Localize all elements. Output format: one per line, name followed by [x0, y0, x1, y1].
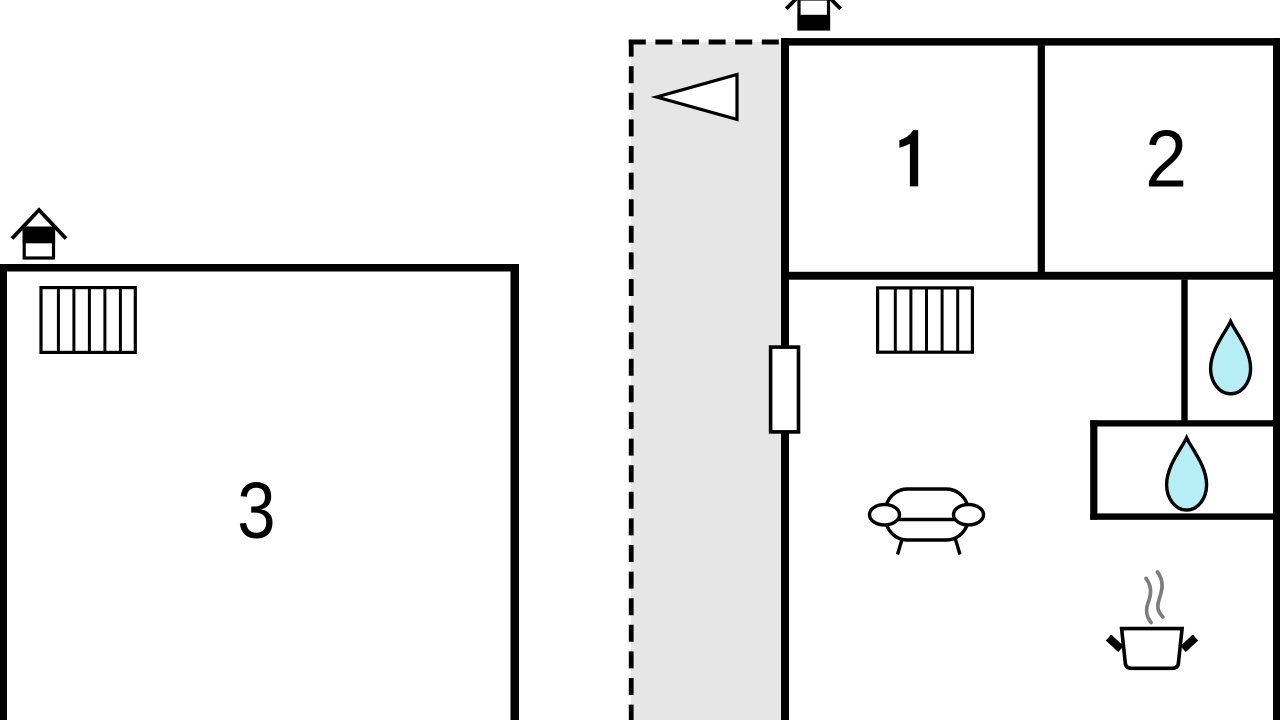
svg-text:3: 3 [237, 466, 275, 555]
svg-text:2: 2 [1145, 114, 1187, 204]
